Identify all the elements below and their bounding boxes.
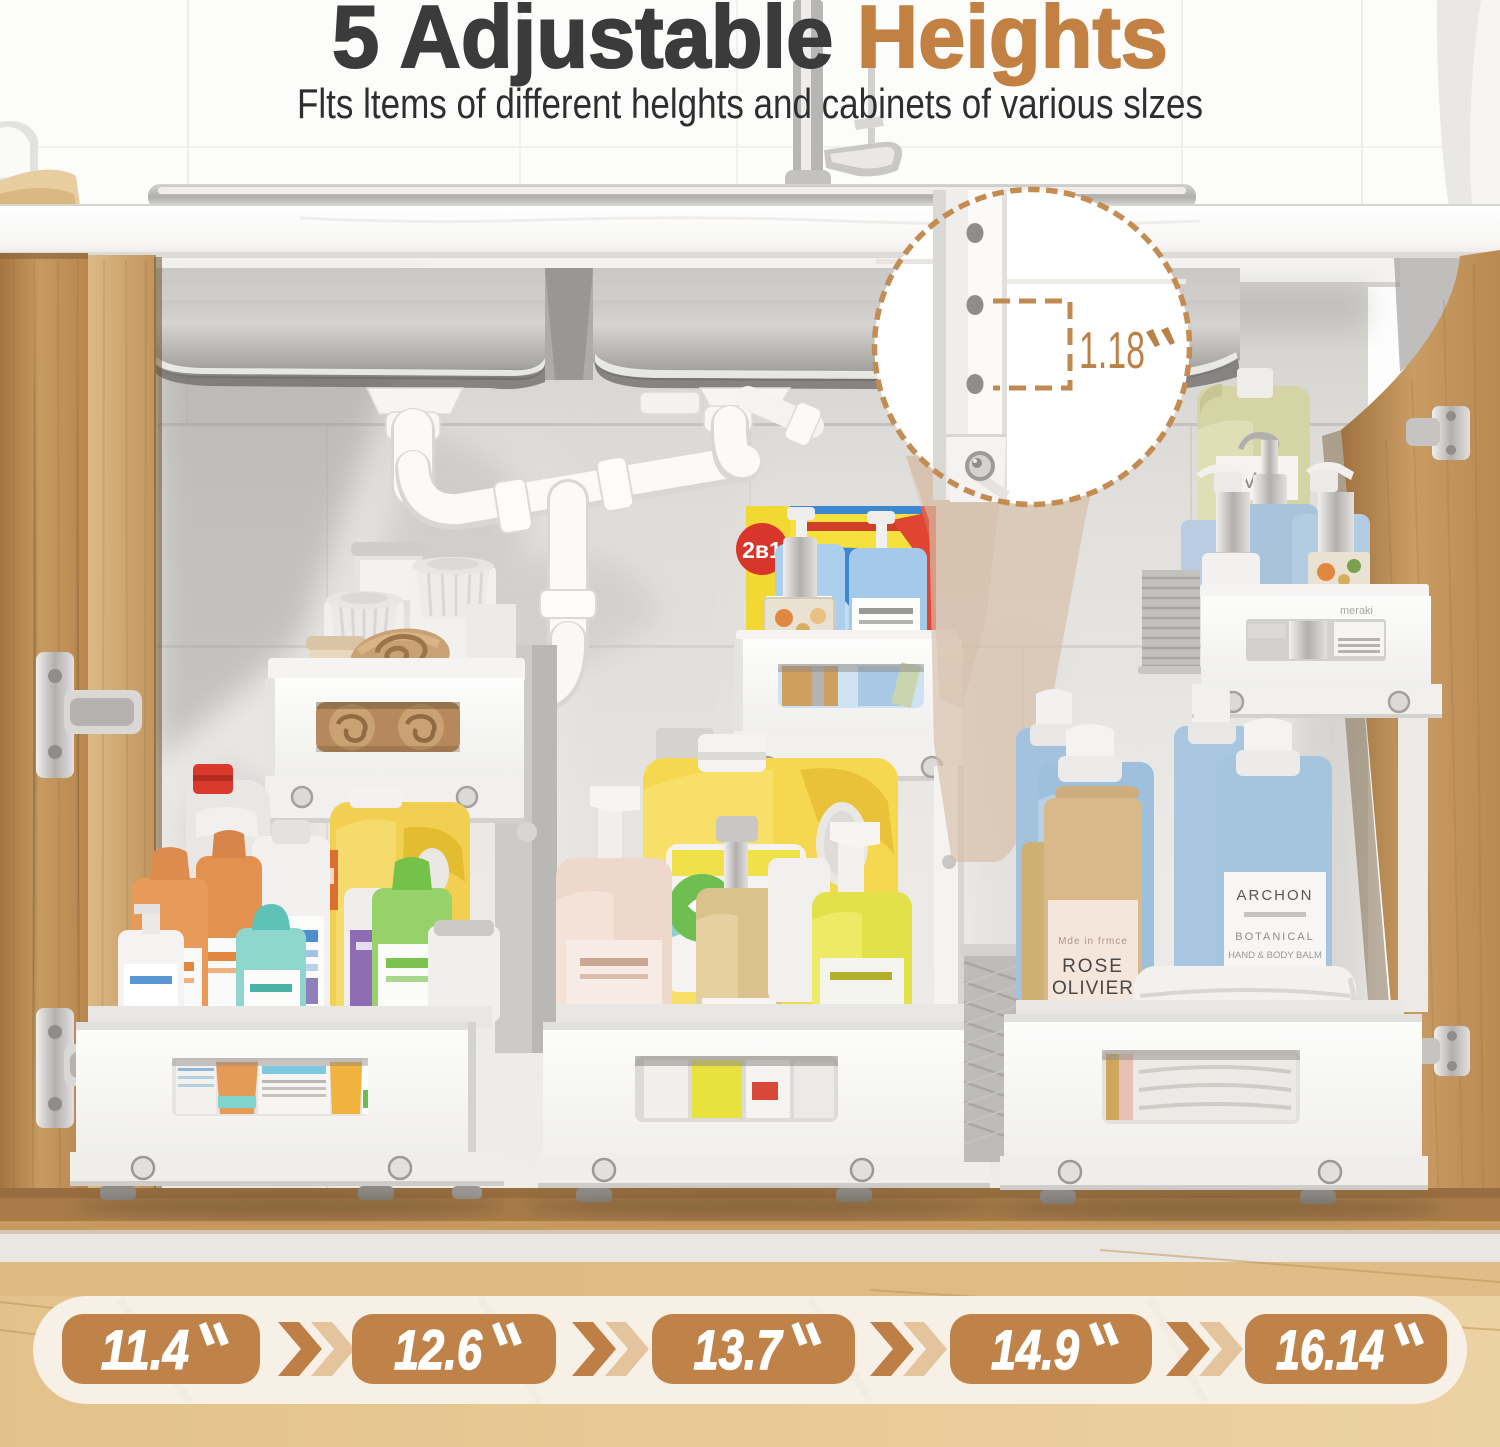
svg-text:13.7: 13.7 [694, 1318, 784, 1381]
svg-text:Mde in frmce: Mde in frmce [1058, 936, 1128, 947]
svg-text:meraki: meraki [1340, 605, 1373, 617]
svg-text:14.9: 14.9 [991, 1318, 1079, 1381]
svg-text:1.18: 1.18 [1079, 322, 1145, 380]
svg-text:16.14: 16.14 [1276, 1318, 1384, 1381]
svg-text:11.4: 11.4 [101, 1318, 189, 1381]
svg-text:OLIVIER: OLIVIER [1052, 978, 1134, 999]
svg-text:5 Adjustable Heights: 5 Adjustable Heights [332, 0, 1168, 86]
svg-text:BOTANICAL: BOTANICAL [1235, 931, 1315, 943]
svg-text:HAND & BODY BALM: HAND & BODY BALM [1228, 950, 1322, 961]
svg-text:12.6: 12.6 [394, 1318, 483, 1381]
svg-text:ROSE: ROSE [1062, 956, 1124, 977]
svg-text:Flts ltems of different helght: Flts ltems of different helghts and cabi… [297, 80, 1203, 127]
svg-text:ARCHON: ARCHON [1236, 887, 1313, 904]
